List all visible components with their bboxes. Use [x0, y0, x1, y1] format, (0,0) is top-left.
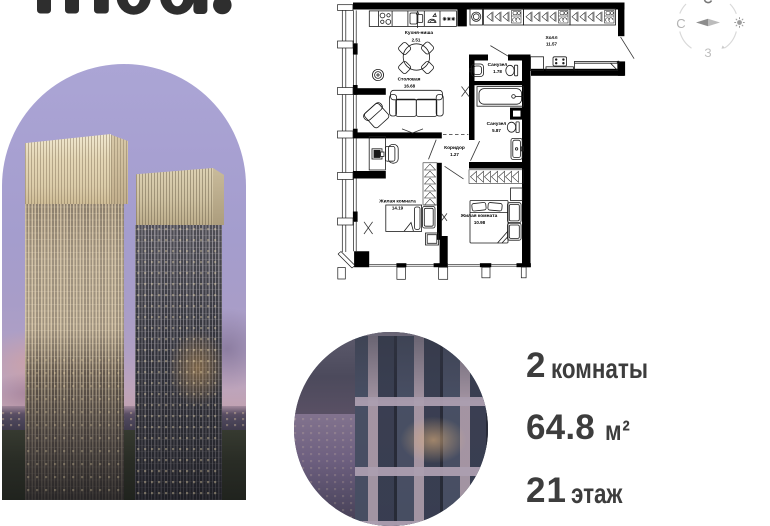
svg-text:Санузел: Санузел — [488, 62, 508, 68]
svg-text:Жилая комната: Жилая комната — [460, 213, 498, 219]
svg-text:5.87: 5.87 — [492, 128, 501, 133]
svg-text:З: З — [704, 46, 711, 60]
svg-text:Санузел: Санузел — [487, 121, 507, 127]
svg-text:1.78: 1.78 — [493, 69, 502, 74]
svg-text:2.51: 2.51 — [412, 38, 421, 43]
svg-text:10.98: 10.98 — [474, 220, 486, 225]
svg-text:Столовая: Столовая — [398, 77, 421, 83]
svg-text:1.27: 1.27 — [450, 152, 459, 157]
svg-text:16.68: 16.68 — [404, 84, 416, 89]
svg-text:Жилая комната: Жилая комната — [378, 199, 416, 205]
svg-text:14.19: 14.19 — [392, 206, 404, 211]
svg-text:Кухня-ниша: Кухня-ниша — [405, 30, 433, 36]
svg-text:11.57: 11.57 — [546, 42, 558, 47]
svg-text:Холл: Холл — [545, 35, 557, 41]
svg-text:Коридор: Коридор — [444, 145, 465, 151]
svg-text:С: С — [676, 16, 685, 31]
